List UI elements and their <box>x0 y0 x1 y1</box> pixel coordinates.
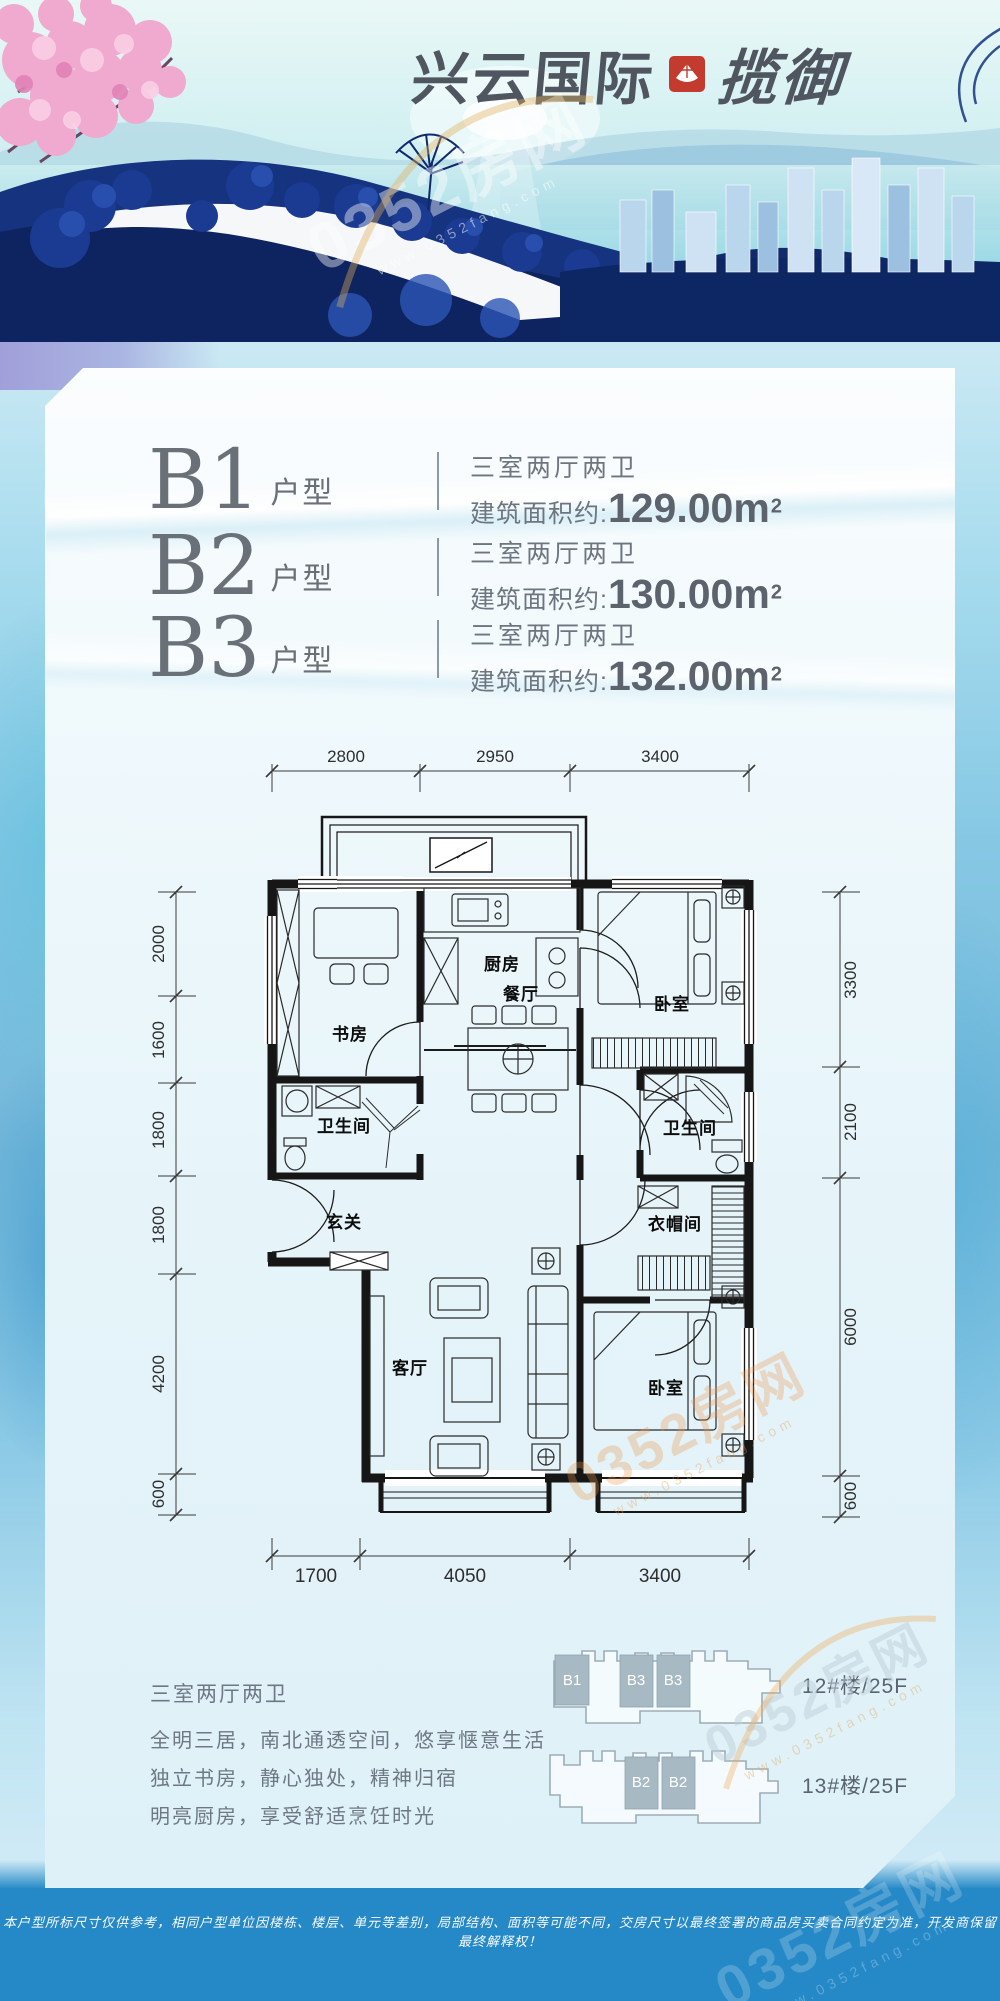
unit-info-b3: 三室两厅两卫 建筑面积约:132.00m2 <box>470 616 783 700</box>
svg-text:B1: B1 <box>563 1672 581 1689</box>
building-13: B2 B2 13#楼/25F <box>550 1751 908 1823</box>
divider <box>437 620 439 678</box>
balcony <box>322 817 586 884</box>
description-block: 三室两厅两卫 全明三居，南北通透空间，悠享惬意生活 独立书房，静心独处，精神归宿… <box>150 1678 546 1836</box>
unit-code: B3 <box>148 614 260 684</box>
svg-text:2800: 2800 <box>327 747 365 766</box>
unit-area: 建筑面积约:130.00m2 <box>470 571 783 618</box>
unit-info-b1: 三室两厅两卫 建筑面积约:129.00m2 <box>470 448 783 532</box>
poster: 兴云国际 揽御 B1 户型 三室两厅两卫 建筑面积约:129.00m2 B2 户… <box>0 0 1000 2001</box>
svg-text:1700: 1700 <box>295 1566 337 1587</box>
building-label: 12#楼/25F <box>802 1675 908 1698</box>
building-12: B1 B3 B3 12#楼/25F <box>554 1651 908 1723</box>
svg-text:2100: 2100 <box>841 1103 860 1141</box>
unit-area: 建筑面积约:132.00m2 <box>470 653 783 700</box>
svg-text:卫生间: 卫生间 <box>663 1118 717 1138</box>
svg-text:衣帽间: 衣帽间 <box>648 1214 702 1234</box>
svg-text:厨房: 厨房 <box>484 954 520 974</box>
svg-text:餐厅: 餐厅 <box>503 984 539 1004</box>
svg-text:玄关: 玄关 <box>326 1212 362 1232</box>
seal-icon <box>668 55 706 93</box>
doors <box>272 930 710 1355</box>
unit-area: 建筑面积约:129.00m2 <box>470 485 783 532</box>
description-line: 独立书房，静心独处，精神归宿 <box>150 1760 546 1798</box>
brand-subname: 揽御 <box>714 30 848 117</box>
svg-text:B3: B3 <box>627 1672 645 1689</box>
svg-text:600: 600 <box>149 1480 168 1508</box>
description-title: 三室两厅两卫 <box>150 1678 546 1708</box>
building-key-plans: B1 B3 B3 12#楼/25F B2 B2 13#楼/25F <box>540 1635 1000 1860</box>
svg-text:卧室: 卧室 <box>654 994 690 1014</box>
unit-row-b1: B1 户型 <box>148 446 334 516</box>
unit-code: B2 <box>148 532 260 602</box>
unit-row-b3: B3 户型 <box>148 614 334 684</box>
svg-text:2950: 2950 <box>476 747 514 766</box>
unit-row-b2: B2 户型 <box>148 532 334 602</box>
svg-text:3300: 3300 <box>841 961 860 999</box>
svg-text:B3: B3 <box>664 1672 682 1689</box>
svg-text:4200: 4200 <box>149 1355 168 1393</box>
unit-code: B1 <box>148 446 260 516</box>
unit-info-b2: 三室两厅两卫 建筑面积约:130.00m2 <box>470 534 783 618</box>
description-line: 全明三居，南北通透空间，悠享惬意生活 <box>150 1722 546 1760</box>
brand-logo: 兴云国际 揽御 <box>412 30 844 117</box>
floor-plan: 2800 2950 3400 2000 1600 1800 1800 4200 … <box>100 740 910 1600</box>
svg-text:4050: 4050 <box>444 1566 486 1587</box>
svg-text:书房: 书房 <box>332 1024 368 1044</box>
svg-text:B2: B2 <box>669 1774 687 1791</box>
description-line: 明亮厨房，享受舒适烹饪时光 <box>150 1798 546 1836</box>
svg-text:6000: 6000 <box>841 1308 860 1346</box>
building-label: 13#楼/25F <box>802 1775 908 1798</box>
svg-text:3400: 3400 <box>641 747 679 766</box>
svg-text:客厅: 客厅 <box>391 1358 428 1378</box>
svg-text:2000: 2000 <box>149 925 168 963</box>
svg-text:B2: B2 <box>632 1774 650 1791</box>
divider <box>437 452 439 510</box>
svg-text:1800: 1800 <box>149 1206 168 1244</box>
unit-suffix: 户型 <box>270 636 334 684</box>
brand-name: 兴云国际 <box>408 32 659 116</box>
unit-suffix: 户型 <box>270 554 334 602</box>
svg-text:600: 600 <box>841 1482 860 1510</box>
svg-text:3400: 3400 <box>639 1566 681 1587</box>
svg-text:1800: 1800 <box>149 1111 168 1149</box>
svg-text:1600: 1600 <box>149 1021 168 1059</box>
unit-layout: 三室两厅两卫 <box>470 448 783 484</box>
unit-layout: 三室两厅两卫 <box>470 616 783 652</box>
unit-suffix: 户型 <box>270 468 334 516</box>
divider <box>437 538 439 596</box>
unit-layout: 三室两厅两卫 <box>470 534 783 570</box>
header-illustration: 兴云国际 揽御 <box>0 0 1000 342</box>
svg-text:卫生间: 卫生间 <box>317 1116 371 1136</box>
disclaimer-text: 本户型所标尺寸仅供参考，相同户型单位因楼栋、楼层、单元等差别，局部结构、面积等可… <box>0 1912 1000 1950</box>
svg-text:卧室: 卧室 <box>648 1378 684 1398</box>
